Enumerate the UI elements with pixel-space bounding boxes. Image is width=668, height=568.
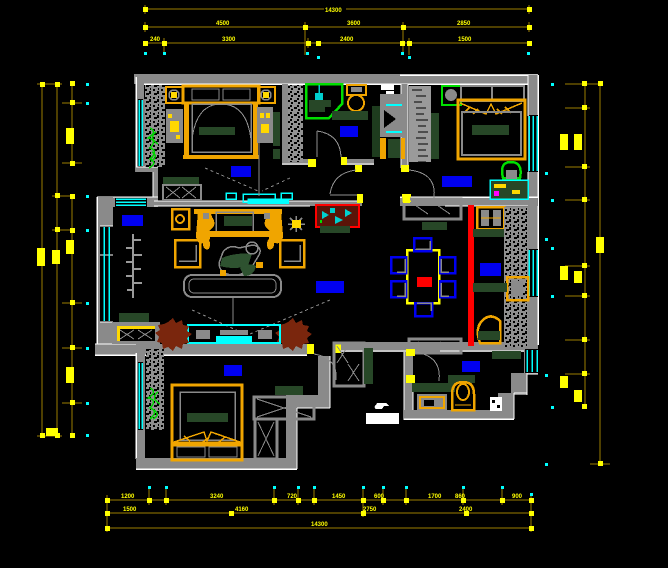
svg-text:240: 240 <box>150 37 161 43</box>
svg-text:14300: 14300 <box>325 8 342 14</box>
svg-text:600: 600 <box>374 494 385 500</box>
svg-text:2400: 2400 <box>459 507 473 513</box>
svg-text:720: 720 <box>287 494 298 500</box>
svg-text:1500: 1500 <box>123 507 137 513</box>
svg-text:900: 900 <box>512 494 523 500</box>
svg-text:2850: 2850 <box>457 21 471 27</box>
svg-text:4160: 4160 <box>235 507 249 513</box>
svg-text:1200: 1200 <box>121 494 135 500</box>
svg-text:3300: 3300 <box>222 37 236 43</box>
svg-text:1500: 1500 <box>458 37 472 43</box>
svg-text:860: 860 <box>455 494 466 500</box>
svg-text:4500: 4500 <box>216 21 230 27</box>
svg-text:2400: 2400 <box>340 37 354 43</box>
svg-text:2750: 2750 <box>363 507 377 513</box>
svg-text:14300: 14300 <box>311 522 328 528</box>
svg-text:3240: 3240 <box>210 494 224 500</box>
svg-text:3600: 3600 <box>347 21 361 27</box>
svg-text:1700: 1700 <box>428 494 442 500</box>
svg-text:1450: 1450 <box>332 494 346 500</box>
